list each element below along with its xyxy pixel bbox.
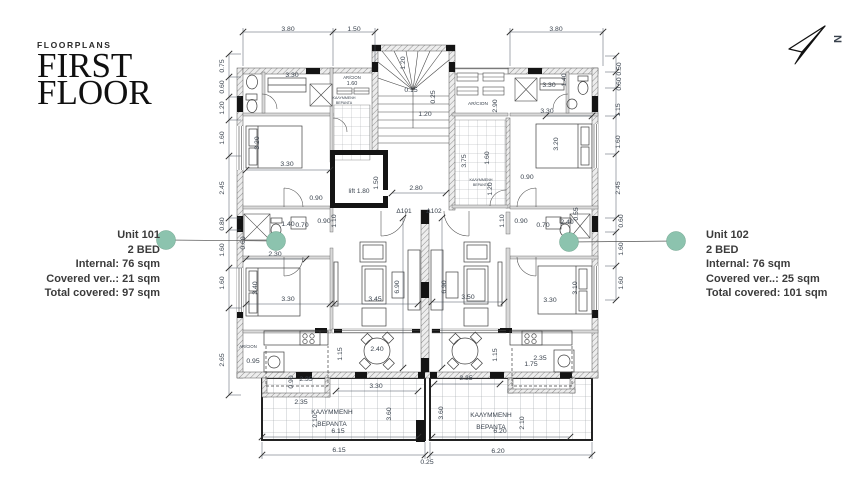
unit-covered: Covered ver..: 21 sqm [0, 272, 160, 287]
plan-label: 6.90 [441, 280, 448, 293]
plan-label: AR/CION [343, 75, 360, 80]
plan-label: 3.20 [553, 137, 560, 150]
plan-label: 1.15 [615, 103, 622, 116]
plan-label: 1.10 [499, 214, 506, 227]
plan-label: 2.10 [519, 416, 526, 429]
plan-label: 0.25 [420, 459, 433, 466]
plan-label: 6.15 [331, 428, 344, 435]
north-arrow-icon: N [789, 26, 843, 64]
plan-label: 3.35 [459, 375, 472, 382]
plan-label: AR/CION [468, 101, 489, 107]
plan-label: 0.90 [317, 218, 330, 225]
plan-label: 6.20 [491, 448, 504, 455]
plan-label: ΚΑΛΥΜΜΕΝΗ [470, 178, 493, 182]
furniture [246, 75, 592, 386]
plan-label: 1.60 [219, 131, 226, 144]
plan-label: 1.10 [331, 214, 338, 227]
plan-label: 1.40 [561, 73, 568, 86]
plan-label: 0.90 [520, 174, 533, 181]
unit-total: Total covered: 101 sqm [706, 286, 852, 301]
plan-label: 3.80 [549, 26, 562, 33]
plan-label: 1.60 [219, 276, 226, 289]
plan-label: 0.80 [219, 217, 226, 230]
plan-label: 1.40 [281, 221, 294, 228]
unit-beds: 2 BED [706, 243, 852, 258]
plan-label: 2.80 [409, 185, 422, 192]
plan-label: 3.60 [386, 407, 393, 420]
title-block: FLOORPLANS FIRST FLOOR [37, 40, 152, 106]
plan-label: 1.75 [524, 361, 537, 368]
plan-label: Δ102 [426, 208, 442, 215]
unit-101-callout: Unit 101 2 BED Internal: 76 sqm Covered … [0, 228, 160, 301]
plan-label: 0.60 [618, 214, 625, 227]
unit-101-plan-marker[interactable] [267, 232, 286, 251]
plan-label: 1.50 [347, 26, 360, 33]
plan-label: 3.20 [254, 136, 261, 149]
plan-label: 3.75 [461, 154, 468, 167]
plan-label: 0.90 [309, 195, 322, 202]
unit-covered: Covered ver..: 25 sqm [706, 272, 852, 287]
plan-label: 0.55 [573, 207, 580, 220]
ac-vents [244, 73, 590, 240]
plan-label: lift 1.80 [349, 188, 370, 195]
plan-label: 3.80 [281, 26, 294, 33]
plan-label: 2.35 [299, 376, 312, 383]
plan-label: 1.60 [618, 242, 625, 255]
plan-label: 1.20 [400, 56, 407, 69]
plan-label: 3.30 [285, 72, 298, 79]
plan-label: 0.15 [404, 87, 417, 94]
plan-label: 2.30 [268, 251, 281, 258]
plan-label: 0.60 [616, 77, 623, 90]
plan-label: 1.60 [347, 81, 358, 87]
plan-label: 3.30 [280, 161, 293, 168]
plan-label: 2.35 [294, 399, 307, 406]
plan-label: 1.50 [373, 176, 380, 189]
plan-label: 0.75 [219, 59, 226, 72]
plan-label: 2.65 [219, 353, 226, 366]
unit-102-callout: Unit 102 2 BED Internal: 76 sqm Covered … [706, 228, 852, 301]
unit-name: Unit 101 [0, 228, 160, 243]
plan-label: 0.90 [514, 218, 527, 225]
plan-label: 3.30 [369, 383, 382, 390]
page-title: FIRST FLOOR [37, 52, 152, 106]
unit-name: Unit 102 [706, 228, 852, 243]
plan-label: 3.50 [461, 294, 474, 301]
plan-label: 3.45 [368, 296, 381, 303]
unit-beds: 2 BED [0, 243, 160, 258]
plan-label: ΒΕΡΑΝΤΑ [473, 183, 490, 187]
staircase [378, 51, 449, 143]
unit-total: Total covered: 97 sqm [0, 286, 160, 301]
plan-label: 2.45 [219, 181, 226, 194]
plan-label: 3.30 [281, 296, 294, 303]
plan-label: ΒΕΡΑΝΤΑ [476, 424, 506, 431]
plan-label: 0.25 [430, 90, 437, 103]
plan-label: 0.50 [616, 62, 623, 75]
plan-label: 1.20 [418, 111, 431, 118]
plan-label: ΚΑΛΥΜΜΕΝΗ [333, 96, 356, 100]
plan-label: 1.60 [615, 135, 622, 148]
plan-label: ΒΕΡΑΝΤΑ [317, 421, 347, 428]
plan-label: 3.30 [542, 82, 555, 89]
plan-label: 0.70 [295, 222, 308, 229]
plan-label: 3.30 [540, 108, 553, 115]
plan-label: 2.45 [615, 181, 622, 194]
plan-label: ΚΑΛΥΜΜΕΝΗ [311, 409, 353, 416]
plan-label: 1.60 [484, 151, 491, 164]
plan-label: 1.15 [492, 348, 499, 361]
plan-label: 1.20 [219, 101, 226, 114]
plan-label: 0.70 [536, 222, 549, 229]
plan-label: 1.60 [618, 276, 625, 289]
plan-label: 3.10 [572, 281, 579, 294]
plan-label: 6.90 [394, 280, 401, 293]
plan-label: Δ101 [396, 208, 412, 215]
unit-102-marker[interactable] [667, 232, 686, 251]
plan-label: 0.95 [246, 358, 259, 365]
plan-label: ΒΕΡΑΝΤΑ [336, 101, 353, 105]
plan-label: 3.60 [438, 406, 445, 419]
plan-label: 2.90 [492, 99, 499, 112]
plan-label: 6.15 [332, 447, 345, 454]
unit-internal: Internal: 76 sqm [706, 257, 852, 272]
unit-internal: Internal: 76 sqm [0, 257, 160, 272]
plan-label: 2.40 [560, 219, 573, 226]
plan-label: AR/CION [239, 344, 256, 349]
floorplan-page: 3.801.503.800.750.601.201.602.450.801.60… [0, 0, 852, 480]
plan-label: ΚΑΛΥΜΜΕΝΗ [470, 412, 512, 419]
plan-label: 3.30 [543, 297, 556, 304]
plan-label: 2.40 [370, 346, 383, 353]
unit-102-plan-marker[interactable] [560, 233, 579, 252]
plan-label: 0.60 [240, 236, 247, 249]
north-letter: N [831, 35, 843, 43]
plan-label: 0.90 [288, 375, 295, 388]
plan-label: 1.60 [219, 243, 226, 256]
plan-label: 0.60 [219, 80, 226, 93]
plan-label: 1.15 [337, 347, 344, 360]
plan-label: 3.40 [252, 281, 259, 294]
